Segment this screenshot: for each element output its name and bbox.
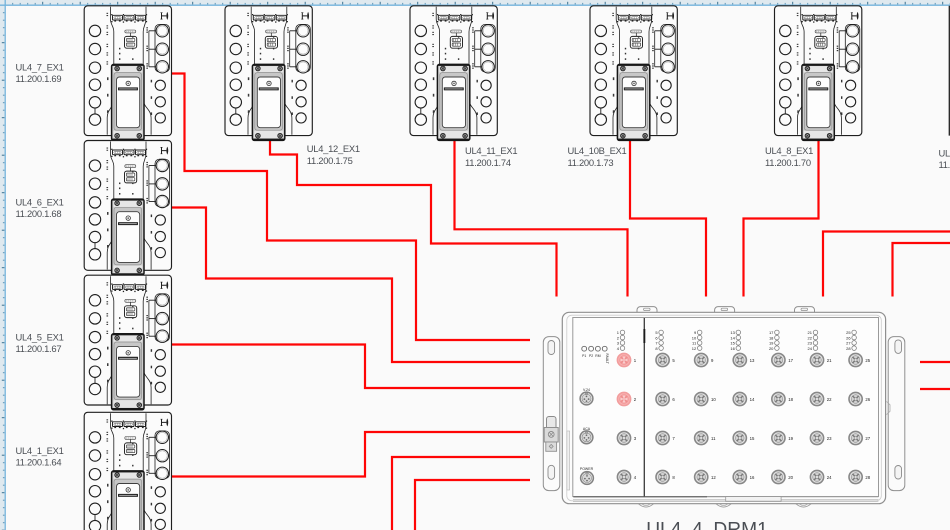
svg-text:FAULT: FAULT xyxy=(605,354,609,364)
svg-text:20: 20 xyxy=(788,475,793,480)
svg-text:POWER: POWER xyxy=(580,467,594,471)
svg-text:11.200.1.68: 11.200.1.68 xyxy=(16,208,62,219)
svg-text:16: 16 xyxy=(730,346,735,351)
svg-text:UL4_9_EX1: UL4_9_EX1 xyxy=(939,148,950,159)
svg-text:RM: RM xyxy=(595,354,600,358)
svg-text:24: 24 xyxy=(827,475,832,480)
svg-text:27: 27 xyxy=(865,436,870,441)
svg-text:15: 15 xyxy=(730,341,735,346)
svg-text:23: 23 xyxy=(808,341,813,346)
svg-text:16: 16 xyxy=(750,475,755,480)
svg-text:10: 10 xyxy=(711,397,716,402)
svg-text:12: 12 xyxy=(711,475,716,480)
svg-text:25: 25 xyxy=(865,358,870,363)
svg-text:21: 21 xyxy=(827,358,832,363)
svg-text:UL4_7_EX1: UL4_7_EX1 xyxy=(16,61,64,72)
svg-text:11: 11 xyxy=(711,436,716,441)
svg-text:10: 10 xyxy=(692,335,697,340)
svg-text:11.200.1.71: 11.200.1.71 xyxy=(939,159,950,170)
svg-text:26: 26 xyxy=(846,335,851,340)
svg-text:11.200.1.73: 11.200.1.73 xyxy=(568,157,614,168)
svg-text:11.200.1.67: 11.200.1.67 xyxy=(16,343,62,354)
svg-text:19: 19 xyxy=(788,436,793,441)
svg-text:28: 28 xyxy=(865,475,870,480)
svg-text:25: 25 xyxy=(846,330,851,335)
svg-text:11.200.1.64: 11.200.1.64 xyxy=(16,457,62,468)
svg-text:15: 15 xyxy=(750,436,755,441)
svg-text:20: 20 xyxy=(769,346,774,351)
svg-text:17: 17 xyxy=(788,358,793,363)
svg-text:11.200.1.69: 11.200.1.69 xyxy=(16,73,62,84)
svg-text:UL4_4_DRM1: UL4_4_DRM1 xyxy=(646,519,768,530)
svg-text:UL4_12_EX1: UL4_12_EX1 xyxy=(307,143,360,154)
svg-text:14: 14 xyxy=(730,335,735,340)
svg-text:14: 14 xyxy=(750,397,755,402)
svg-text:11.200.1.75: 11.200.1.75 xyxy=(307,155,353,166)
svg-text:22: 22 xyxy=(808,335,813,340)
svg-text:17: 17 xyxy=(769,330,774,335)
svg-text:P1: P1 xyxy=(582,354,586,358)
svg-text:21: 21 xyxy=(808,330,813,335)
svg-text:UL4_6_EX1: UL4_6_EX1 xyxy=(16,196,64,207)
svg-text:28: 28 xyxy=(846,346,851,351)
svg-text:UL4_5_EX1: UL4_5_EX1 xyxy=(16,331,64,342)
svg-text:11.200.1.74: 11.200.1.74 xyxy=(465,157,511,168)
svg-text:27: 27 xyxy=(846,341,851,346)
svg-text:26: 26 xyxy=(865,397,870,402)
svg-text:22: 22 xyxy=(827,397,832,402)
svg-text:24: 24 xyxy=(808,346,813,351)
svg-text:18: 18 xyxy=(788,397,793,402)
svg-text:13: 13 xyxy=(750,358,755,363)
svg-text:18: 18 xyxy=(769,335,774,340)
svg-text:UL4_8_EX1: UL4_8_EX1 xyxy=(765,145,813,156)
svg-text:UL4_1_EX1: UL4_1_EX1 xyxy=(16,445,64,456)
svg-text:23: 23 xyxy=(827,436,832,441)
svg-text:13: 13 xyxy=(730,330,735,335)
svg-text:12: 12 xyxy=(692,346,697,351)
svg-text:UL4_10B_EX1: UL4_10B_EX1 xyxy=(568,145,627,156)
svg-text:11.200.1.70: 11.200.1.70 xyxy=(765,157,811,168)
svg-text:UL4_11_EX1: UL4_11_EX1 xyxy=(465,145,517,156)
svg-text:P2: P2 xyxy=(589,354,593,358)
svg-text:19: 19 xyxy=(769,341,774,346)
